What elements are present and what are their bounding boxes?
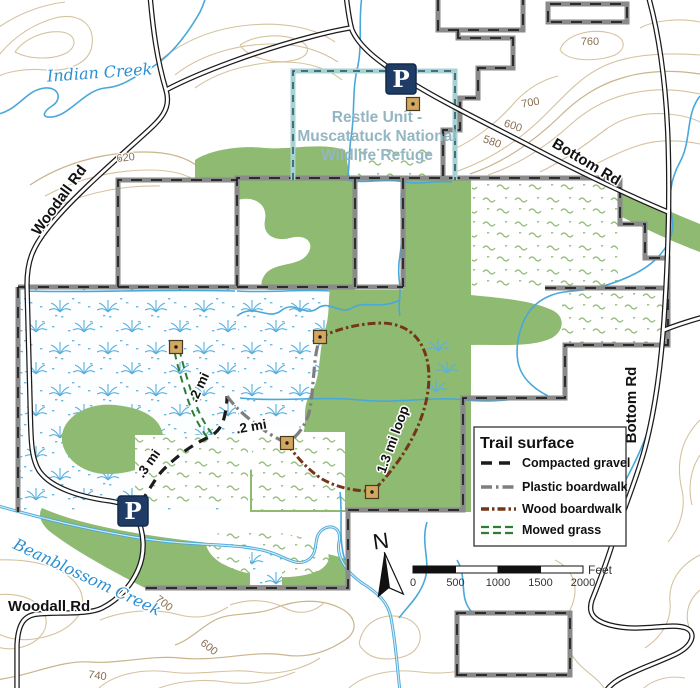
legend-item-wood: Wood boardwalk — [522, 502, 622, 516]
woodall-rd-lower-label: Woodall Rd — [8, 598, 90, 615]
indian-creek-label: Indian Creek — [45, 59, 153, 85]
legend-item-gravel: Compacted gravel — [522, 456, 630, 470]
svg-text:620: 620 — [116, 151, 136, 165]
north-arrow: N — [368, 527, 403, 598]
svg-text:1000: 1000 — [486, 577, 510, 589]
refuge-name-line2: Muscatatuck National — [297, 128, 456, 145]
svg-text:0: 0 — [410, 577, 416, 589]
scale-unit: Feet — [588, 563, 613, 577]
refuge-name-line1: Restle Unit - — [332, 109, 422, 126]
legend-item-plastic: Plastic boardwalk — [522, 480, 628, 494]
indian-creek — [0, 0, 206, 117]
svg-text:700: 700 — [520, 96, 540, 111]
svg-text:760: 760 — [581, 36, 599, 48]
svg-text:580: 580 — [481, 133, 502, 151]
svg-text:500: 500 — [446, 577, 464, 589]
svg-text:1500: 1500 — [528, 577, 552, 589]
parking-sign-north: P — [386, 64, 416, 94]
svg-text:2000: 2000 — [571, 577, 595, 589]
north-label: N — [371, 528, 390, 555]
trail-map: P P Indian Creek Beanblossom Creek Wooda… — [0, 0, 700, 688]
legend-title: Trail surface — [480, 435, 574, 452]
parking-letter: P — [124, 498, 141, 525]
woodall-rd-upper-label: Woodall Rd — [28, 162, 90, 239]
scale-bar: 0 500 1000 1500 2000 Feet — [410, 563, 613, 589]
svg-text:740: 740 — [87, 669, 107, 683]
parking-sign-south: P — [118, 496, 148, 526]
legend: Trail surface Compacted gravel Plastic b… — [474, 427, 630, 546]
svg-text:600: 600 — [198, 637, 220, 658]
parking-letter: P — [392, 66, 409, 93]
refuge-name-line3: Wildlife Refuge — [321, 147, 433, 164]
legend-item-grass: Mowed grass — [522, 523, 601, 537]
